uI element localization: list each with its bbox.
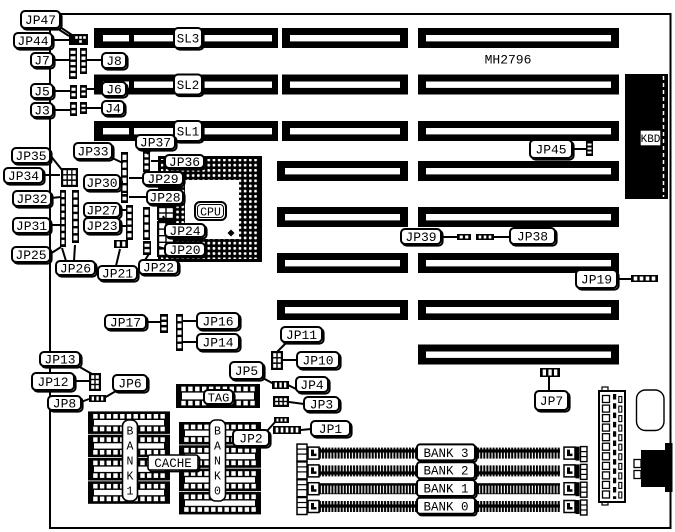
svg-text:JP11: JP11 <box>286 328 317 343</box>
svg-text:B: B <box>127 426 134 439</box>
svg-text:B: B <box>214 426 221 439</box>
svg-text:BANK 3: BANK 3 <box>423 447 468 461</box>
svg-text:J7: J7 <box>34 54 50 69</box>
svg-text:JP47: JP47 <box>25 13 56 28</box>
svg-text:JP24: JP24 <box>169 224 200 239</box>
svg-text:N: N <box>214 456 221 469</box>
svg-text:JP22: JP22 <box>143 261 174 276</box>
svg-text:BANK 1: BANK 1 <box>423 483 468 497</box>
svg-text:CACHE: CACHE <box>154 457 192 471</box>
svg-text:JP19: JP19 <box>581 273 612 288</box>
svg-text:0: 0 <box>214 486 221 499</box>
svg-text:J8: J8 <box>106 54 122 69</box>
svg-text:MH2796: MH2796 <box>485 53 532 68</box>
svg-text:JP27: JP27 <box>86 204 117 219</box>
svg-text:JP36: JP36 <box>169 155 200 170</box>
svg-text:JP12: JP12 <box>37 375 68 390</box>
svg-text:CPU: CPU <box>200 207 221 220</box>
svg-text:JP33: JP33 <box>77 145 108 160</box>
svg-text:JP29: JP29 <box>147 172 178 187</box>
svg-text:JP34: JP34 <box>8 169 39 184</box>
svg-text:JP13: JP13 <box>44 353 75 368</box>
svg-text:KBD: KBD <box>641 134 661 146</box>
svg-text:SL1: SL1 <box>177 126 200 140</box>
svg-text:J6: J6 <box>106 83 122 98</box>
svg-text:JP14: JP14 <box>202 336 233 351</box>
svg-text:JP8: JP8 <box>53 397 76 412</box>
svg-text:JP25: JP25 <box>15 248 46 263</box>
svg-text:A: A <box>214 441 221 454</box>
svg-text:J3: J3 <box>34 104 50 119</box>
svg-text:J4: J4 <box>105 102 121 117</box>
svg-text:JP32: JP32 <box>16 192 47 207</box>
svg-text:BANK 2: BANK 2 <box>423 465 468 479</box>
svg-text:JP4: JP4 <box>300 378 324 393</box>
svg-text:TAG: TAG <box>208 391 230 405</box>
svg-text:JP38: JP38 <box>517 230 548 245</box>
svg-text:JP21: JP21 <box>102 267 133 282</box>
svg-text:1: 1 <box>127 486 134 499</box>
svg-text:SL2: SL2 <box>177 79 200 93</box>
svg-text:K: K <box>127 471 134 484</box>
svg-text:JP10: JP10 <box>302 354 333 369</box>
svg-text:A: A <box>127 441 134 454</box>
svg-text:JP39: JP39 <box>405 230 436 245</box>
svg-text:JP2: JP2 <box>239 432 262 447</box>
svg-text:JP35: JP35 <box>15 149 46 164</box>
svg-text:JP23: JP23 <box>86 219 117 234</box>
svg-text:JP17: JP17 <box>110 316 141 331</box>
svg-text:SL3: SL3 <box>177 33 200 47</box>
svg-text:JP37: JP37 <box>140 136 171 151</box>
svg-text:J5: J5 <box>34 85 50 100</box>
svg-text:JP5: JP5 <box>235 364 258 379</box>
svg-text:JP16: JP16 <box>202 315 233 330</box>
svg-text:JP1: JP1 <box>319 422 343 437</box>
svg-text:N: N <box>127 456 134 469</box>
svg-text:JP20: JP20 <box>169 243 200 258</box>
svg-text:JP6: JP6 <box>118 377 141 392</box>
svg-text:JP26: JP26 <box>60 262 91 277</box>
svg-text:JP28: JP28 <box>149 191 180 206</box>
svg-text:JP31: JP31 <box>16 219 47 234</box>
svg-text:JP44: JP44 <box>17 34 48 49</box>
svg-text:JP30: JP30 <box>86 176 117 191</box>
svg-text:JP45: JP45 <box>535 143 566 158</box>
svg-text:BANK 0: BANK 0 <box>423 500 468 514</box>
svg-text:K: K <box>214 471 221 484</box>
svg-text:JP3: JP3 <box>310 398 333 413</box>
svg-text:JP7: JP7 <box>540 394 563 409</box>
